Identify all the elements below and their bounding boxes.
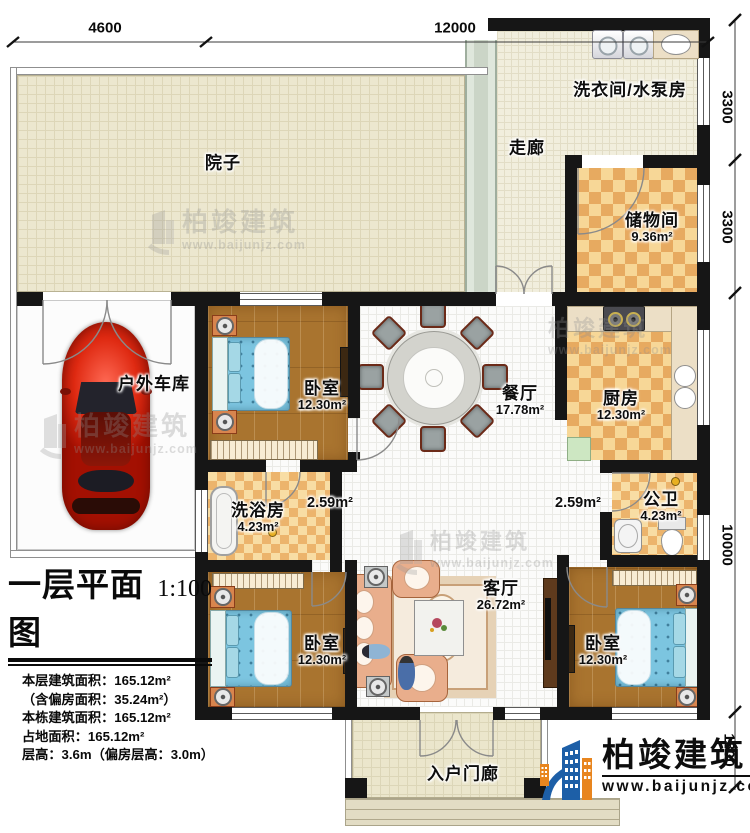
wall	[697, 707, 710, 720]
wall	[300, 460, 357, 472]
person	[362, 644, 390, 659]
wall	[345, 560, 357, 572]
dim-top-1: 4600	[88, 20, 121, 37]
sofa-cushion	[354, 590, 374, 614]
dining-table-center	[425, 369, 443, 387]
side-table	[366, 676, 390, 697]
wall	[17, 292, 43, 306]
wall	[10, 550, 200, 558]
brand-name: 柏竣建筑	[602, 738, 750, 773]
lamp-icon	[369, 678, 387, 696]
lamp-icon	[678, 586, 696, 604]
yard-floor	[17, 75, 465, 292]
wall	[643, 155, 710, 168]
room-label-wc: 公卫4.23m²	[640, 490, 681, 524]
door-knob	[671, 477, 680, 486]
wall	[171, 292, 197, 306]
room-label-hall-right: 2.59m²	[555, 495, 601, 511]
stat-line: 占地面积：165.12m²	[22, 728, 212, 747]
pillow	[228, 373, 241, 403]
title-divider	[8, 664, 212, 666]
bed-duvet	[254, 612, 289, 685]
wall	[557, 555, 569, 710]
room-label-bath: 洗浴房4.23m²	[231, 501, 285, 535]
room-label-kitchen: 厨房12.30m²	[597, 389, 645, 423]
wall	[348, 306, 360, 418]
wall	[552, 292, 710, 306]
wall	[345, 778, 367, 798]
room-label-storage: 储物间9.36m²	[625, 211, 679, 245]
nightstand	[210, 687, 235, 707]
wall	[607, 555, 710, 567]
stat-line: 本层建筑面积：165.12m²	[22, 672, 212, 691]
plan-scale: 1:100	[157, 576, 212, 603]
wall	[697, 560, 710, 720]
bathtub-basin	[216, 493, 232, 549]
kitchen-sink	[674, 387, 696, 409]
fridge	[567, 437, 591, 461]
laundry-sink	[661, 34, 691, 55]
brand-logo-icon	[538, 738, 594, 804]
nightstand	[210, 586, 235, 608]
pillow	[228, 342, 241, 372]
side-table	[364, 566, 388, 588]
room-label-laundry: 洗衣间/水泵房	[573, 80, 687, 99]
room-label-bedroom-top: 卧室12.30m²	[298, 379, 346, 413]
dim-top-2: 12000	[434, 20, 476, 37]
bed-duvet	[254, 339, 288, 409]
room-label-living: 客厅26.72m²	[477, 579, 525, 613]
wall	[208, 460, 266, 472]
lamp-icon	[367, 568, 385, 586]
window	[240, 293, 322, 306]
wc-sink	[614, 519, 642, 553]
room-label-yard: 院子	[205, 153, 241, 172]
kitchen-sink	[674, 365, 696, 387]
dim-right-1: 3300	[719, 90, 736, 123]
room-label-corridor: 走廊	[509, 138, 545, 157]
pillow	[226, 615, 239, 646]
plan-title: 一层平面图	[8, 558, 147, 654]
window	[697, 330, 710, 425]
stat-line: 层高：3.6m（偏房层高：3.0m）	[22, 746, 212, 765]
dining-chair	[358, 364, 384, 390]
wall	[345, 572, 357, 707]
lamp-icon	[678, 688, 696, 706]
title-divider	[8, 658, 212, 662]
window	[195, 490, 208, 552]
coffee-table	[414, 600, 464, 656]
stat-line: （含偏房面积：35.24m²）	[22, 691, 212, 710]
wall	[565, 155, 577, 305]
tv	[545, 598, 551, 660]
room-label-garage: 户外车库	[118, 374, 190, 393]
floor-plan: 4600 12000 3300 3300 10000 1800 院子 走廊 洗衣…	[0, 0, 750, 833]
lamp-icon	[214, 688, 232, 706]
room-label-hall-left: 2.59m²	[307, 495, 353, 511]
dining-chair	[420, 426, 446, 452]
nightstand	[212, 315, 237, 336]
pillow	[226, 647, 239, 678]
bed-headboard	[210, 610, 226, 687]
bed-headboard	[212, 337, 228, 411]
window	[505, 707, 540, 720]
car-spoiler	[72, 498, 140, 514]
porch-floor	[352, 712, 541, 798]
nightstand	[212, 410, 237, 434]
window	[612, 707, 697, 720]
window	[232, 707, 332, 720]
room-label-bedroom-br: 卧室12.30m²	[579, 634, 627, 668]
wall	[600, 512, 612, 560]
armchair-cushion	[404, 566, 430, 590]
window	[697, 515, 710, 560]
room-label-porch: 入户门廊	[427, 764, 499, 783]
room-label-bedroom-bl: 卧室12.30m²	[298, 634, 346, 668]
lamp-icon	[216, 317, 234, 335]
stove	[603, 306, 645, 331]
corridor-floor	[497, 155, 565, 292]
nightstand	[676, 584, 698, 606]
lamp-icon	[214, 588, 232, 606]
brand-website: www.baijunjz.com	[602, 775, 750, 796]
room-label-dining: 餐厅17.78m²	[496, 384, 544, 418]
wall	[10, 67, 488, 75]
lamp-icon	[216, 413, 234, 431]
dim-right-2: 3300	[719, 210, 736, 243]
wardrobe	[210, 440, 318, 460]
washing-machine	[623, 30, 654, 59]
wall	[332, 707, 420, 720]
wall	[208, 560, 312, 572]
window	[697, 185, 710, 262]
wall	[540, 707, 612, 720]
yard-corridor-divider	[465, 40, 497, 292]
wall	[607, 460, 710, 473]
car	[62, 322, 150, 530]
wall	[10, 67, 17, 558]
car-roof	[81, 412, 131, 466]
person	[398, 656, 415, 690]
wall	[555, 306, 567, 420]
dim-right-3: 10000	[719, 524, 736, 566]
washing-machine	[592, 30, 623, 59]
wall	[493, 707, 505, 720]
car-mirror	[60, 388, 71, 395]
wall	[322, 292, 496, 306]
wall	[348, 452, 360, 460]
wc-sink-basin	[618, 524, 638, 548]
burner-icon	[626, 312, 641, 327]
window	[697, 58, 710, 125]
wall	[330, 472, 342, 572]
wall	[195, 292, 208, 490]
stat-line: 本栋建筑面积：165.12m²	[22, 709, 212, 728]
brand-logo: 柏竣建筑 www.baijunjz.com	[538, 738, 750, 804]
car-rear-window	[78, 470, 134, 492]
wall	[600, 460, 612, 473]
title-block: 一层平面图 1:100 本层建筑面积：165.12m² （含偏房面积：35.24…	[8, 558, 212, 765]
nightstand	[676, 687, 698, 707]
sofa-cushion	[354, 616, 374, 640]
washer-drum-icon	[629, 37, 648, 56]
pillow	[673, 646, 686, 678]
pillow	[673, 613, 686, 645]
washer-drum-icon	[598, 37, 617, 56]
flower-decor-icon	[432, 618, 442, 628]
burner-icon	[608, 312, 623, 327]
